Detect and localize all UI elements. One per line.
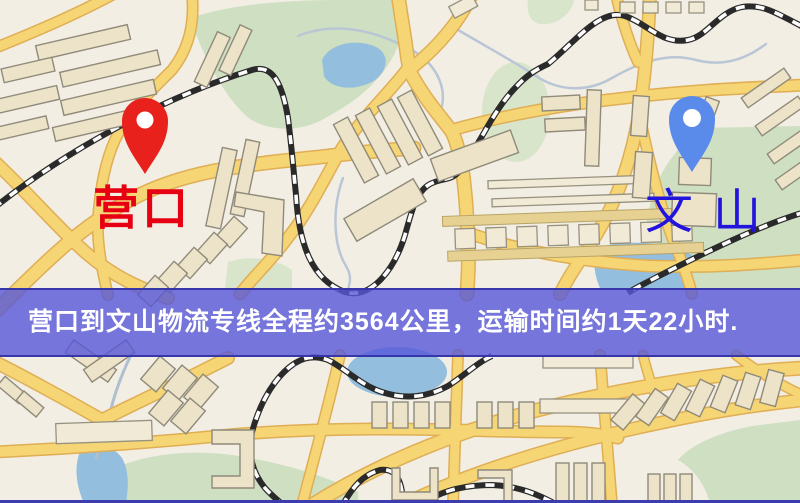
origin-label: 营口	[93, 182, 191, 234]
origin-pin-icon	[122, 98, 168, 174]
destination-pin-hole	[683, 109, 701, 127]
route-summary-text: 营口到文山物流专线全程约3564公里，运输时间约1天22小时.	[0, 290, 800, 354]
route-info-banner: 营口到文山物流专线全程约3564公里，运输时间约1天22小时.	[0, 288, 800, 357]
destination-label: 文山	[645, 186, 781, 239]
origin-pin-hole	[137, 112, 154, 129]
map-canvas: 营口 文山	[0, 0, 800, 503]
map-screenshot: 营口 文山 营口到文山物流专线全程约3564公里，运输时间约1天22小时.	[0, 0, 800, 503]
